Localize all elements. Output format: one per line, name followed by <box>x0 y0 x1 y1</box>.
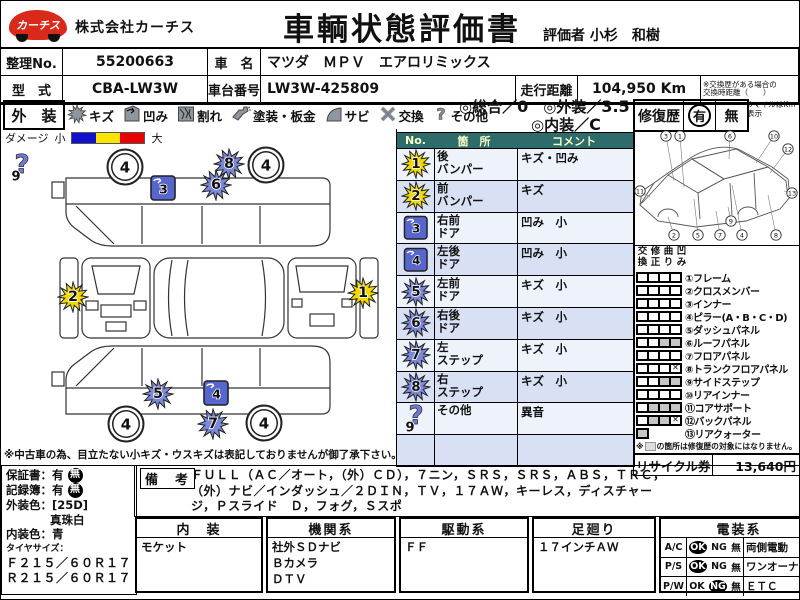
frame-note: ※ の箇所は修復歴の対象にはなりません。 <box>636 441 797 452</box>
exterior-color-label: 外装色： <box>6 498 52 512</box>
company-name: 株式会社カーチス <box>75 17 195 37</box>
svg-text:5: 5 <box>696 232 700 240</box>
damage-scale: ダメージ 小 大 <box>5 130 162 146</box>
damage-part: 右 ステップ <box>434 372 518 403</box>
frame-part-row: ⑬リアクォーター <box>636 427 788 440</box>
repair-history-label: 修復歴 <box>635 101 684 130</box>
svg-text:10: 10 <box>770 133 778 141</box>
damage-row-5: 5左前 ドアキズ 小 <box>397 275 634 307</box>
damage-row-9: ?9その他異音 <box>397 402 634 434</box>
exterior-score: 3.5 <box>601 97 629 116</box>
damage-marker-1: 1 <box>347 277 379 313</box>
remarks-section: 備 考 ＦＵＬＬ（ＡＣ／オート，（外）ＣＤ），７ニン，ＳＲＳ，ＳＲＳ，ＡＢＳ，Ｔ… <box>134 465 800 517</box>
equipment-col: 内 装モケット <box>135 517 263 593</box>
svg-text:5: 5 <box>153 386 163 402</box>
evaluator: 評価者 小杉 和樹 <box>543 25 660 45</box>
damage-marker-9: ?9 <box>7 151 37 189</box>
svg-text:3: 3 <box>664 133 668 141</box>
equipment-col: 駆動系ＦＦ <box>399 517 529 593</box>
damage-part: 左 ステップ <box>434 340 518 371</box>
svg-text:3: 3 <box>412 222 420 236</box>
damage-marker-6: 6 <box>200 169 232 205</box>
frame-note-prefix: ※ <box>636 442 644 451</box>
svg-text:6: 6 <box>728 133 732 141</box>
wheel-marker: 4 <box>246 405 283 442</box>
svg-text:1: 1 <box>411 156 420 172</box>
frame-grid: ①フレーム②クロスメンバー③インナー④ピラー(A・B・C・D)⑤ダッシュパネル⑥… <box>636 271 788 440</box>
damage-row-1: 1後 バンパーキズ・凹み <box>397 148 634 180</box>
vehicle-condition-report: カーチス 株式会社カーチス 車輌状態評価書 評価者 小杉 和樹 整理No. 55… <box>0 0 800 600</box>
paint-icon <box>231 105 251 126</box>
equipment-columns: 内 装モケット機関系社外ＳＤナビＢカメラＤＴＶ駆動系ＦＦ足廻り１７インチＡＷ <box>135 517 656 593</box>
replace-icon <box>379 105 397 126</box>
remarks-label: 備 考 <box>140 468 195 489</box>
svg-text:9: 9 <box>729 218 733 226</box>
svg-text:4: 4 <box>412 254 420 268</box>
evaluator-label: 評価者 <box>543 28 585 44</box>
model-code: CBA-LW3W <box>63 76 208 103</box>
wheel-marker: 4 <box>107 149 144 186</box>
svg-text:11: 11 <box>636 188 644 196</box>
damage-part: 右後 ドア <box>434 308 518 339</box>
record-yes: 有 <box>52 483 64 497</box>
damage-marker-4: 4 <box>202 379 229 410</box>
equipment-table: 内 装モケット機関系社外ＳＤナビＢカメラＤＴＶ駆動系ＦＦ足廻り１７インチＡＷ 電… <box>135 517 799 593</box>
damage-scale-small: 小 <box>54 130 65 146</box>
dent-icon-legend: 凹み <box>123 105 168 126</box>
damage-diagram-panel: ダメージ 小 大 <box>1 129 397 466</box>
damage-part: その他 <box>434 403 518 434</box>
svg-text:8: 8 <box>774 232 778 240</box>
frame-part-label: ⑬リアクォーター <box>685 426 761 441</box>
svg-text:4: 4 <box>212 387 221 402</box>
chassis-label: 車台番号 <box>208 76 261 103</box>
damage-part: 後 バンパー <box>434 149 518 180</box>
damage-comment: 凹み 小 <box>518 244 634 275</box>
svg-text:12: 12 <box>784 146 792 154</box>
damage-row-6: 6右後 ドアキズ 小 <box>397 307 634 339</box>
damage-comment: キズ 小 <box>518 276 634 307</box>
vehicle-info-table: 整理No. 55200663 車 名 マツダ ＭＰＶ エアロリミックス 型 式 … <box>1 47 799 105</box>
svg-text:2: 2 <box>672 232 676 240</box>
damage-no-icon: 5 <box>397 276 434 307</box>
replace-icon-legend: 交換 <box>379 105 424 126</box>
damage-row-4: 4左後 ドア凹み 小 <box>397 243 634 275</box>
remarks-text: ＦＵＬＬ（ＡＣ／オート，（外）ＣＤ），７ニン，ＳＲＳ，ＳＲＳ，ＡＢＳ，ＴＲＣ，（… <box>191 468 671 515</box>
damage-part: 左前 ドア <box>434 276 518 307</box>
frame-note-text: の箇所は修復歴の対象にはなりません。 <box>657 441 797 452</box>
damage-marker-5: 5 <box>142 378 174 414</box>
damage-part: 前 バンパー <box>434 181 518 212</box>
warranty-yes: 有 <box>52 468 64 482</box>
exterior-section-label: 外 装 <box>3 100 65 130</box>
serial-label: 整理No. <box>1 49 63 76</box>
car-unfolded-diagram: 4444?986321547 <box>2 146 394 446</box>
equipment-col: 機関系社外ＳＤナビＢカメラＤＴＶ <box>266 517 396 593</box>
svg-text:8: 8 <box>411 379 420 395</box>
svg-text:9: 9 <box>11 170 20 185</box>
tire-rear: Ｒ２１５／６０Ｒ１７ <box>6 571 136 586</box>
damage-list-table: No. 箇 所 コメント 1後 バンパーキズ・凹み2前 バンパーキズ3右前 ドア… <box>396 132 635 467</box>
crack-icon-legend: 割れ <box>177 105 222 126</box>
warranty-label: 保証書： <box>6 468 52 482</box>
damage-table-body: 1後 バンパーキズ・凹み2前 バンパーキズ3右前 ドア凹み 小4左後 ドア凹み … <box>397 148 634 466</box>
svg-text:2: 2 <box>411 188 420 204</box>
svg-text:1: 1 <box>358 285 368 301</box>
svg-text:1: 1 <box>678 133 682 141</box>
repair-history-no: 無 <box>725 106 739 126</box>
svg-text:6: 6 <box>411 315 420 331</box>
scratch-icon-legend: キズ <box>67 104 114 127</box>
svg-text:?: ? <box>436 105 445 123</box>
serial-number: 55200663 <box>63 49 208 76</box>
car-name: マツダ ＭＰＶ エアロリミックス <box>261 49 799 76</box>
damage-scale-colorbar <box>71 132 145 144</box>
damage-part: 左後 ドア <box>434 244 518 275</box>
damage-no-icon: 2 <box>397 181 434 212</box>
damage-row-2: 2前 バンパーキズ <box>397 180 634 212</box>
damage-no-icon: 7 <box>397 340 434 371</box>
damage-table-header: No. 箇 所 コメント <box>397 133 634 148</box>
damage-marker-3: 3 <box>149 174 176 205</box>
damage-row-7: 7左 ステップキズ 小 <box>397 339 634 371</box>
evaluation-scores: ◎総合／0 ◎外装／3.5 ◎内装／C <box>459 98 633 136</box>
damage-scale-large: 大 <box>151 130 162 146</box>
col-no: No. <box>397 134 434 147</box>
scratch-icon <box>67 104 87 127</box>
damage-marker-2: 2 <box>57 281 89 317</box>
svg-text:13: 13 <box>788 190 796 198</box>
damage-no-icon: 4 <box>397 244 434 275</box>
damage-part: 右前 ドア <box>434 213 518 244</box>
damage-no-icon: 6 <box>397 308 434 339</box>
tire-size-label: タイヤサイズ： <box>6 542 136 557</box>
exterior-color-code: [25D] <box>52 498 88 512</box>
used-car-note: ※中古車の為、目立たない小キズ・ウスキズは表記しておりませんが御了承下さい。 <box>4 447 402 462</box>
record-no: 無 <box>68 483 83 498</box>
mile-unit-note: ※マイルはKm表示 <box>747 100 799 118</box>
gray-swatch <box>645 442 656 451</box>
rust-icon <box>325 105 343 126</box>
damage-row-empty <box>397 434 634 466</box>
dent-icon <box>123 105 141 126</box>
frame-check-panel: 31610121125794813 交換修正曲り凹み ①フレーム②クロスメンバー… <box>633 129 800 476</box>
frame-grid-headers: 交換修正曲り凹み <box>636 246 688 270</box>
other-icon: ? <box>433 105 449 126</box>
warranty-line: 保証書：有無 <box>6 468 136 483</box>
damage-comment: キズ 小 <box>518 308 634 339</box>
svg-text:7: 7 <box>208 416 218 432</box>
crack-icon <box>177 105 195 126</box>
wheel-marker: 4 <box>108 406 145 443</box>
curtis-car-logo: カーチス <box>9 10 67 40</box>
electrical-row-ac: A/COKNG無両側電動 <box>661 538 800 557</box>
electrical-rows: A/COKNG無両側電動P/SOKNG無ワンオーナー車P/WOKNG無ＥＴＣ <box>661 538 800 596</box>
svg-text:5: 5 <box>411 284 420 300</box>
page-title: 車輌状態評価書 <box>283 4 521 49</box>
damage-comment: キズ 小 <box>518 372 634 403</box>
svg-text:7: 7 <box>718 232 722 240</box>
logo-text: カーチス <box>16 17 60 33</box>
overall-score: 0 <box>517 97 528 116</box>
damage-row-8: 8右 ステップキズ 小 <box>397 371 634 403</box>
overall-score-label: ◎総合／ <box>459 98 517 116</box>
svg-text:4: 4 <box>740 232 744 240</box>
electrical-row-ps: P/SOKNG無ワンオーナー車 <box>661 557 800 577</box>
damage-comment: 凹み 小 <box>518 213 634 244</box>
damage-marker-7: 7 <box>197 408 229 444</box>
paint-icon-legend: 塗装・板金 <box>231 105 316 126</box>
svg-text:9: 9 <box>405 420 414 434</box>
damage-comment: キズ <box>518 181 634 212</box>
damage-no-icon: 1 <box>397 149 434 180</box>
svg-text:6: 6 <box>211 177 221 193</box>
svg-text:2: 2 <box>68 289 78 305</box>
exterior-color-line: 外装色：[25D] <box>6 498 136 513</box>
tire-front: Ｆ２１５／６０Ｒ１７ <box>6 556 136 571</box>
damage-comment: 異音 <box>518 403 634 434</box>
record-label: 記録簿： <box>6 483 52 497</box>
electrical-column: 電装系 A/COKNG無両側電動P/SOKNG無ワンオーナー車P/WOKNG無Ｅ… <box>659 517 800 593</box>
wheel-marker: 4 <box>248 147 285 184</box>
evaluator-name: 小杉 和樹 <box>590 28 660 44</box>
equipment-col: 足廻り１７インチＡＷ <box>532 517 656 593</box>
warranty-no: 無 <box>68 468 83 483</box>
svg-text:7: 7 <box>411 347 420 363</box>
damage-no-icon: ?9 <box>397 403 434 434</box>
interior-color: 青 <box>52 527 64 541</box>
rust-icon-legend: サビ <box>325 105 370 126</box>
repair-history-yes: 有 <box>688 104 711 127</box>
interior-color-line: 内装色：青 <box>6 527 136 542</box>
interior-color-label: 内装色： <box>6 527 52 541</box>
damage-row-3: 3右前 ドア凹み 小 <box>397 212 634 244</box>
repair-history: 修復歴 有 無 <box>633 99 749 132</box>
damage-icon-legend: キズ凹み割れ塗装・板金サビ交換?その他 <box>67 100 488 130</box>
model-label: 型 式 <box>1 76 63 103</box>
record-line: 記録簿：有無 <box>6 483 136 498</box>
exterior-score-label: ◎外装／ <box>543 98 601 116</box>
frame-skeleton-diagram: 31610121125794813 <box>634 129 800 246</box>
svg-text:3: 3 <box>159 182 168 197</box>
electrical-header: 電装系 <box>661 519 800 538</box>
col-location: 箇 所 <box>434 133 514 149</box>
damage-no-icon: 3 <box>397 213 434 244</box>
damage-comment: キズ・凹み <box>518 149 634 180</box>
car-name-label: 車 名 <box>208 49 261 76</box>
damage-comment: キズ 小 <box>518 340 634 371</box>
damage-scale-label: ダメージ <box>5 130 48 146</box>
exterior-color-name: 真珠白 <box>6 513 136 528</box>
document-info-box: 保証書：有無 記録簿：有無 外装色：[25D] 真珠白 内装色：青 タイヤサイズ… <box>1 465 137 595</box>
col-comment: コメント <box>514 133 634 149</box>
damage-no-icon: 8 <box>397 372 434 403</box>
electrical-row-pw: P/WOKNG無ＥＴＣ <box>661 576 800 596</box>
